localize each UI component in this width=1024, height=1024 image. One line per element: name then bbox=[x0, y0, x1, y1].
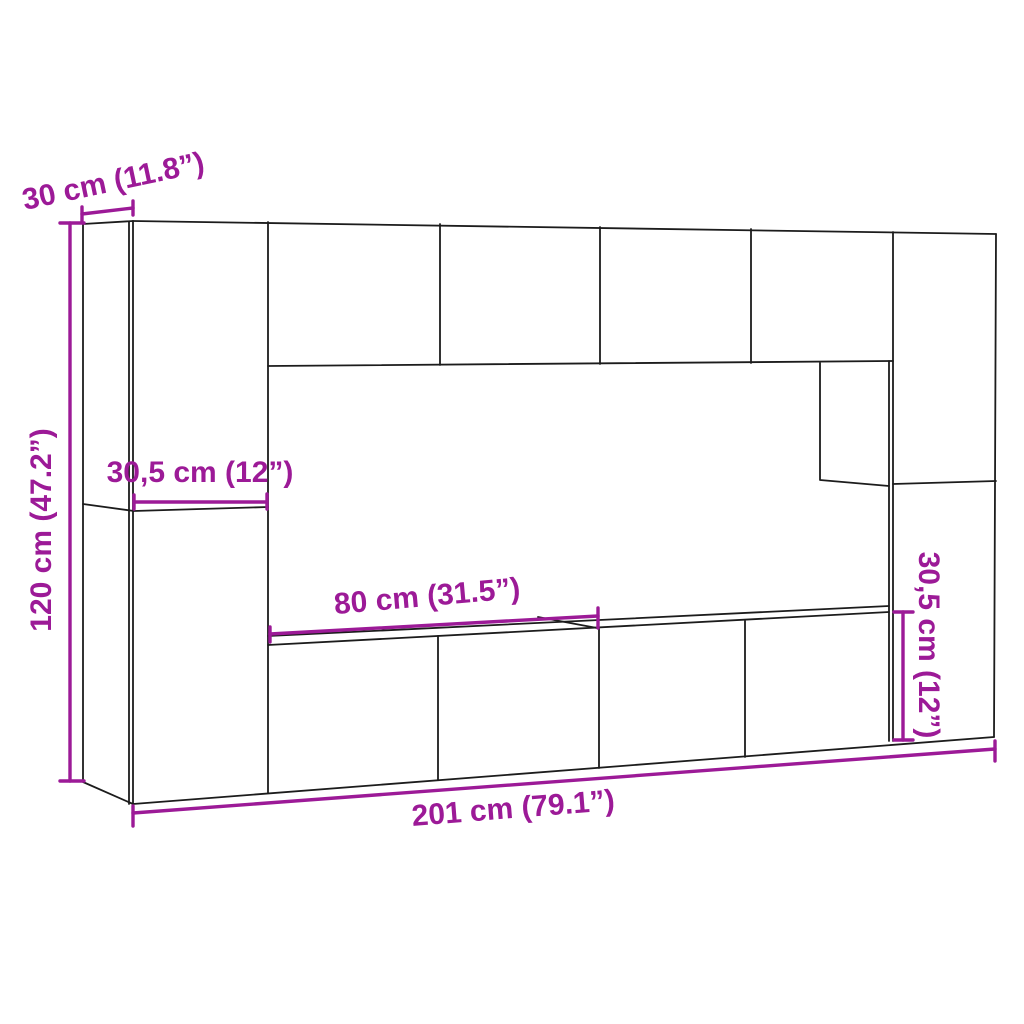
side-panel-back-edge bbox=[83, 224, 133, 804]
diagram-canvas: 30 cm (11.8”) 120 cm (47.2”) 30,5 cm (12… bbox=[0, 0, 1024, 1024]
dimension-labels: 30 cm (11.8”) 120 cm (47.2”) 30,5 cm (12… bbox=[19, 146, 945, 833]
top-edge bbox=[133, 221, 996, 234]
furniture-dimension-diagram: 30 cm (11.8”) 120 cm (47.2”) 30,5 cm (12… bbox=[0, 0, 1024, 1024]
dimension-lines bbox=[60, 201, 995, 826]
right-edge bbox=[994, 234, 996, 737]
label-side-cabinet-width: 30,5 cm (12”) bbox=[107, 456, 294, 489]
dimension-line-tv-cabinet-height bbox=[894, 612, 913, 740]
side-panel-top-edge bbox=[83, 221, 133, 224]
furniture-outline bbox=[83, 221, 996, 804]
label-panel-depth: 30 cm (11.8”) bbox=[19, 146, 207, 217]
label-tv-cabinet-height: 30,5 cm (12”) bbox=[912, 552, 945, 739]
dimension-line-panel-depth bbox=[82, 201, 133, 221]
hanging-cabinet-edges bbox=[820, 363, 889, 486]
top-row-bottom-edge bbox=[268, 361, 893, 366]
label-unit-height: 120 cm (47.2”) bbox=[25, 428, 58, 631]
right-cabinet-divider bbox=[893, 481, 996, 484]
left-cabinet-divider bbox=[83, 504, 268, 511]
label-tv-cabinet-width: 80 cm (31.5”) bbox=[333, 572, 522, 621]
dimension-line-unit-height bbox=[60, 223, 84, 781]
